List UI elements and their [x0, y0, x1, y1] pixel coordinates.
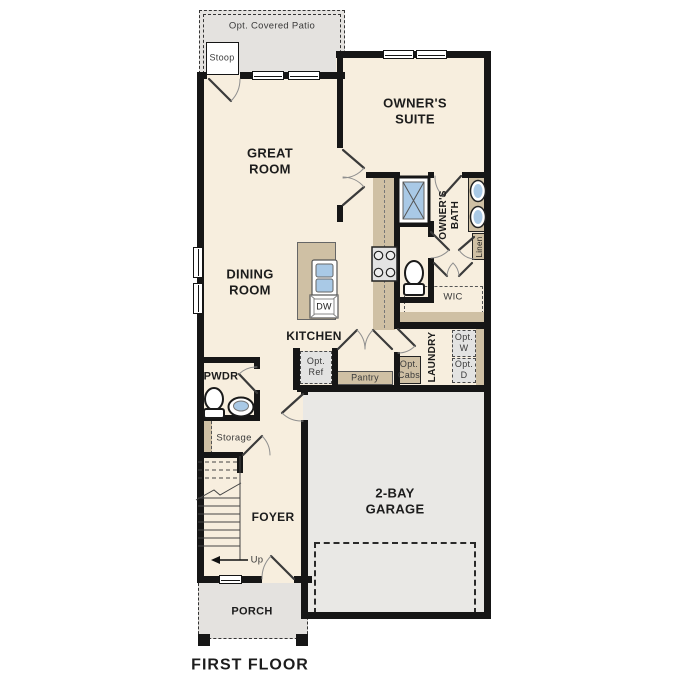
kitchen-label: KITCHEN	[264, 329, 364, 343]
wall	[332, 348, 338, 385]
window	[416, 50, 447, 59]
window	[383, 50, 414, 59]
garage-parking-dash	[314, 542, 476, 614]
wall	[428, 227, 434, 237]
wall	[197, 72, 204, 583]
wall	[462, 172, 491, 178]
plan-title: FIRST FLOOR	[140, 655, 360, 674]
dw-label: DW	[316, 302, 332, 313]
window	[252, 71, 284, 80]
opt-ref-label: Opt. Ref	[307, 356, 325, 378]
owners-bath-label: OWNER'S BATH	[438, 180, 462, 250]
patio-label: Opt. Covered Patio	[197, 20, 347, 31]
wall	[197, 415, 260, 421]
counter-dash-line	[384, 180, 385, 328]
stoop-label: Stoop	[209, 53, 234, 64]
opt-cabs-label: Opt. Cabs	[398, 359, 420, 381]
wall	[428, 172, 434, 178]
porch-post-right	[296, 634, 308, 646]
wall	[394, 322, 491, 329]
owners-suite-label: OWNER'S SUITE	[360, 95, 470, 126]
wall	[394, 172, 400, 328]
great-room-label: GREAT ROOM	[215, 145, 325, 176]
foyer-label: FOYER	[252, 510, 295, 524]
window	[219, 575, 242, 584]
opt-d-label: Opt. D	[455, 359, 473, 381]
storage-label: Storage	[216, 432, 251, 443]
floor-plan: Opt. Covered Patio Stoop GREAT ROOM OWNE…	[0, 0, 687, 687]
wall	[301, 420, 308, 619]
linen-label: Linen	[475, 236, 485, 257]
kitchen-counter	[373, 178, 395, 330]
up-label: Up	[251, 554, 264, 565]
wall	[303, 612, 491, 619]
wall	[397, 297, 434, 303]
pantry-label: Pantry	[351, 373, 379, 384]
wall	[197, 357, 260, 363]
wic-rod-band	[398, 312, 487, 322]
wall	[337, 205, 343, 222]
porch-post-left	[198, 634, 210, 646]
garage-label: 2-BAY GARAGE	[340, 485, 450, 516]
wic-label: WIC	[443, 291, 462, 302]
wall	[254, 357, 260, 369]
laundry-label: LAUNDRY	[427, 332, 439, 383]
wall	[237, 452, 243, 473]
dining-room-label: DINING ROOM	[200, 266, 300, 297]
window	[288, 71, 320, 80]
porch-label: PORCH	[231, 605, 272, 618]
wall	[337, 51, 343, 148]
pwdr-label: PWDR	[204, 370, 239, 383]
wall	[293, 348, 300, 390]
opt-w-label: Opt. W	[455, 332, 473, 354]
wall	[484, 51, 491, 619]
